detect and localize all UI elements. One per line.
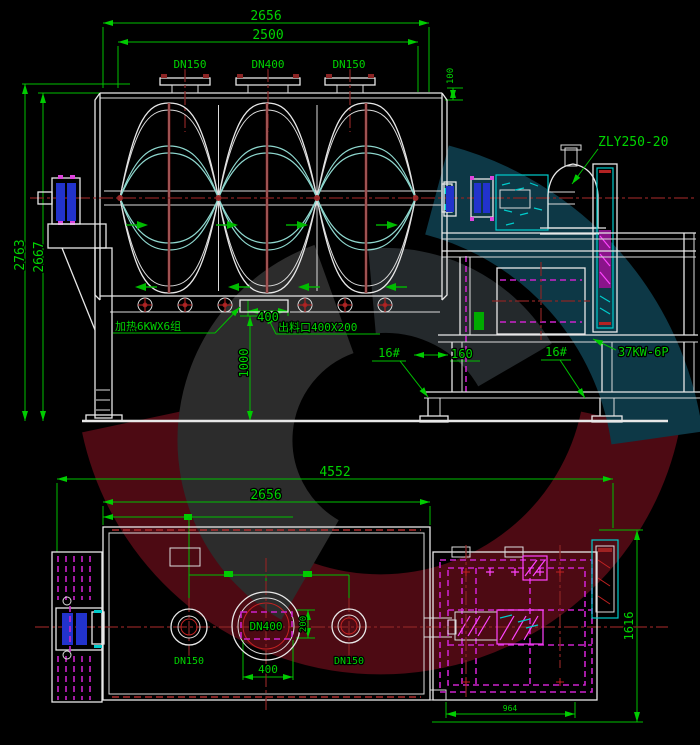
dim-total-height: 2763 (13, 239, 28, 270)
dim-right-detail: 100 (446, 68, 456, 84)
dim-inner-length: 2500 (252, 28, 283, 43)
discharge-label: 出料口400X200 (278, 320, 357, 334)
port-flange (298, 298, 312, 312)
motor-label: 37KW-6P (618, 345, 669, 359)
cad-canvas: 2656 2500 DN150 DN400 DN150 100 2763 266… (0, 0, 700, 745)
port-flange (218, 298, 232, 312)
plan-label-dn400: DN400 (249, 620, 282, 633)
logo-watermark (131, 190, 657, 624)
port-flange (378, 298, 392, 312)
dim-discharge-width: 400 (257, 310, 279, 324)
mixer-drawing: 2656 2500 DN150 DN400 DN150 100 2763 266… (0, 0, 700, 745)
plan-motor (592, 540, 618, 618)
dim-plan-overall: 4552 (319, 465, 350, 480)
channel-label-right: 16# (545, 345, 567, 359)
dim-plan-platform-width: 1616 (622, 612, 636, 641)
dim-shell-height: 2667 (32, 241, 47, 272)
heater-label: 加热6KWX6组 (115, 319, 181, 333)
dim-discharge-height: 1000 (237, 349, 251, 378)
green-block (474, 312, 484, 330)
nozzle-dn150-left (160, 68, 210, 132)
dim-plan-port-spacing: 400 (258, 663, 278, 676)
port-flange (178, 298, 192, 312)
nozzle-label-dn150-right: DN150 (332, 58, 365, 71)
channel-label-left: 16# (378, 346, 400, 360)
nozzle-label-dn150-left: DN150 (173, 58, 206, 71)
dim-plan-vessel: 2656 (250, 488, 281, 503)
port-flange (138, 298, 152, 312)
reducer-label: ZLY250-20 (598, 135, 668, 150)
dim-plan-port-offset: 200 (299, 616, 309, 632)
plan-label-dn150-right: DN150 (334, 656, 364, 667)
nozzle-label-dn400: DN400 (251, 58, 284, 71)
port-flange (338, 298, 352, 312)
dim-column-width: 160 (451, 347, 473, 361)
dim-overall-length: 2656 (250, 9, 281, 24)
nozzle-dn150-right (325, 68, 375, 132)
dim-plan-platform-length: 964 (503, 704, 518, 713)
left-bearing-pedestal (38, 175, 122, 421)
plan-label-dn150-left: DN150 (174, 656, 204, 667)
